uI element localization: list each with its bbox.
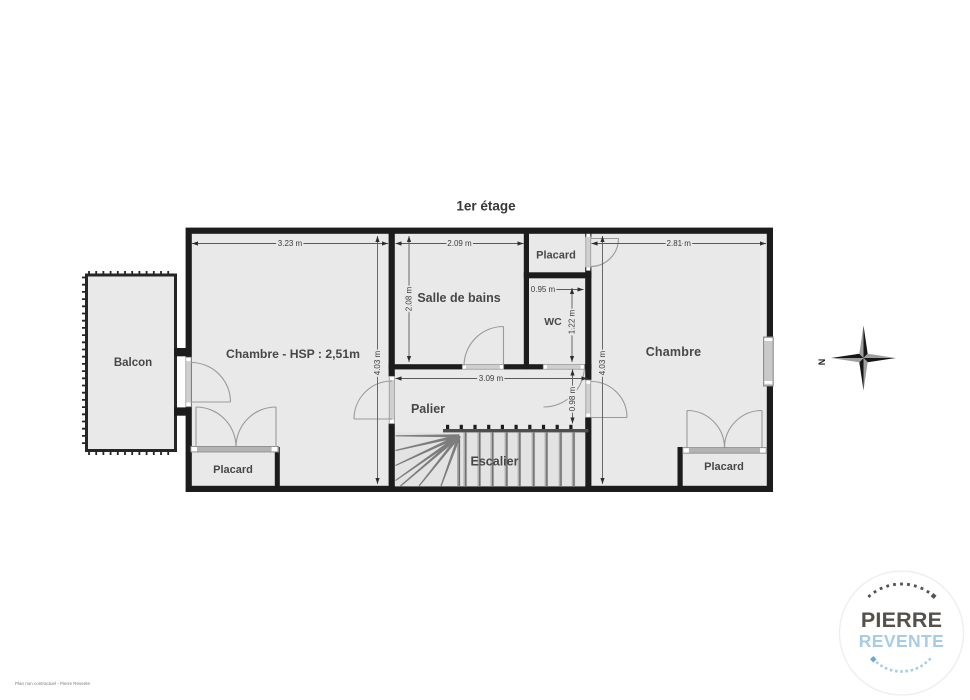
svg-text:2.09 m: 2.09 m [447, 239, 472, 248]
svg-text:Plan non contractuel - Pierre: Plan non contractuel - Pierre Revente [15, 681, 91, 686]
svg-text:Salle de bains: Salle de bains [417, 291, 500, 305]
svg-text:Chambre - HSP : 2,51m: Chambre - HSP : 2,51m [226, 347, 360, 361]
svg-text:2.81 m: 2.81 m [667, 239, 692, 248]
svg-text:3.23 m: 3.23 m [278, 239, 303, 248]
svg-text:Placard: Placard [704, 461, 744, 473]
svg-text:3.09 m: 3.09 m [479, 374, 504, 383]
svg-text:4.03 m: 4.03 m [373, 350, 382, 375]
svg-text:1.22 m: 1.22 m [567, 309, 576, 334]
svg-text:REVENTE: REVENTE [859, 631, 944, 651]
svg-text:Placard: Placard [536, 250, 576, 262]
svg-text:Placard: Placard [213, 464, 253, 476]
svg-text:Palier: Palier [411, 402, 445, 416]
svg-text:Balcon: Balcon [114, 357, 152, 369]
svg-text:0.98 m: 0.98 m [568, 386, 577, 411]
svg-text:N: N [817, 359, 827, 366]
svg-text:1er étage: 1er étage [456, 199, 516, 214]
svg-text:Escalier: Escalier [471, 455, 519, 469]
svg-text:0.95 m: 0.95 m [531, 285, 556, 294]
svg-text:4.03 m: 4.03 m [598, 350, 607, 375]
svg-text:Chambre: Chambre [646, 345, 702, 359]
svg-text:PIERRE: PIERRE [861, 608, 942, 632]
svg-text:WC: WC [544, 316, 562, 328]
svg-text:2.08 m: 2.08 m [404, 286, 413, 311]
